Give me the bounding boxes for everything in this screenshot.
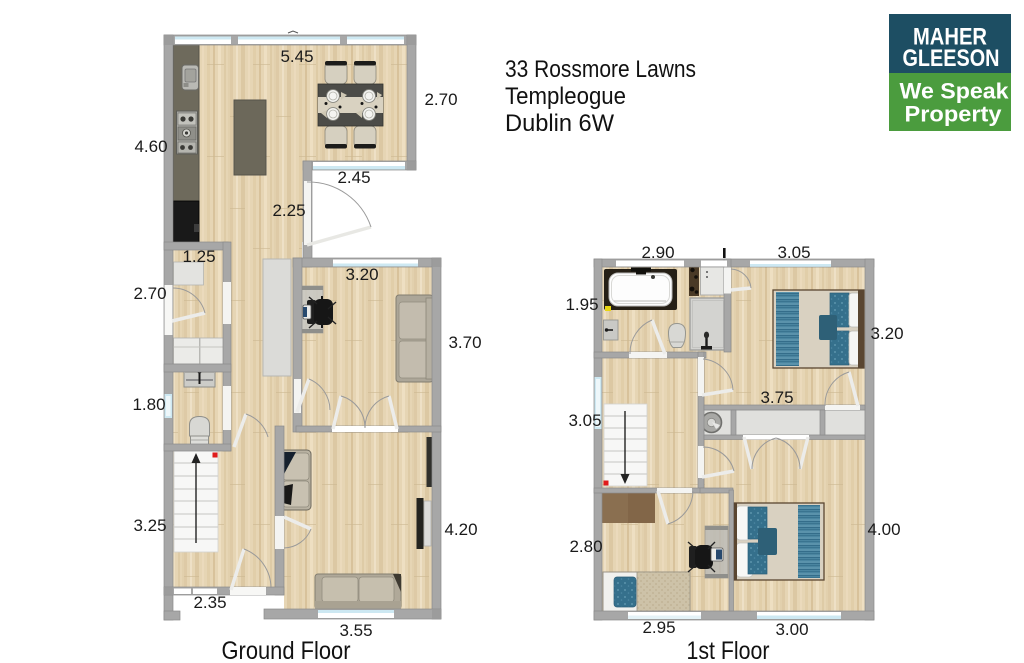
svg-text:3.20: 3.20 (345, 265, 378, 284)
svg-text:1.25: 1.25 (182, 247, 215, 266)
svg-text:1st Floor: 1st Floor (687, 637, 770, 663)
svg-text:2.35: 2.35 (193, 593, 226, 612)
svg-text:Templeogue: Templeogue (505, 83, 626, 110)
svg-text:3.05: 3.05 (568, 411, 601, 430)
svg-text:2.70: 2.70 (424, 90, 457, 109)
svg-text:GLEESON: GLEESON (903, 45, 1000, 72)
svg-text:4.20: 4.20 (444, 520, 477, 539)
svg-text:We Speak: We Speak (900, 79, 1010, 104)
svg-text:3.75: 3.75 (760, 388, 793, 407)
svg-text:2.25: 2.25 (272, 201, 305, 220)
svg-text:Ground Floor: Ground Floor (222, 637, 351, 663)
svg-text:2.45: 2.45 (337, 168, 370, 187)
svg-text:Property: Property (905, 102, 1003, 127)
svg-text:3.20: 3.20 (870, 324, 903, 343)
svg-text:5.45: 5.45 (280, 47, 313, 66)
svg-text:1.80: 1.80 (132, 395, 165, 414)
svg-text:2.80: 2.80 (569, 537, 602, 556)
svg-text:3.25: 3.25 (133, 516, 166, 535)
svg-text:3.70: 3.70 (448, 333, 481, 352)
svg-text:4.00: 4.00 (867, 520, 900, 539)
svg-text:Dublin 6W: Dublin 6W (505, 110, 614, 137)
svg-text:4.60: 4.60 (134, 137, 167, 156)
svg-text:2.90: 2.90 (641, 243, 674, 262)
svg-text:33 Rossmore Lawns: 33 Rossmore Lawns (505, 56, 696, 83)
svg-text:3.05: 3.05 (777, 243, 810, 262)
svg-text:1.95: 1.95 (565, 295, 598, 314)
svg-text:2.70: 2.70 (133, 284, 166, 303)
svg-text:2.95: 2.95 (642, 618, 675, 637)
svg-text:3.00: 3.00 (775, 620, 808, 639)
